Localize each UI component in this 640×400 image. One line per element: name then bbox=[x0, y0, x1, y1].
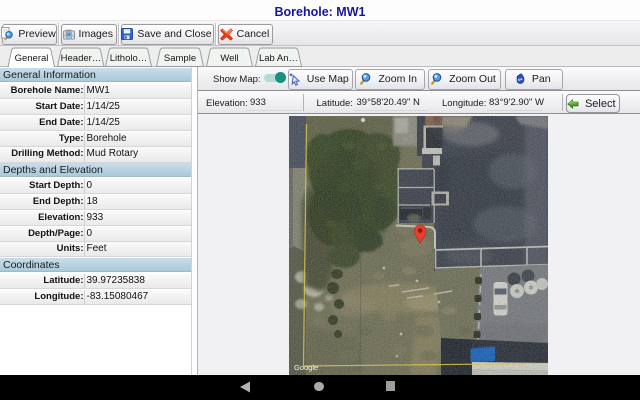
svg-text:Well: Well bbox=[220, 53, 238, 64]
svg-text:Sample: Sample bbox=[164, 53, 196, 64]
svg-text:General: General bbox=[15, 53, 49, 64]
svg-text:Google: Google bbox=[294, 363, 318, 372]
svg-text:Header…: Header… bbox=[61, 53, 102, 64]
svg-text:Litholo…: Litholo… bbox=[110, 53, 148, 64]
svg-text:Lab An…: Lab An… bbox=[259, 53, 298, 64]
